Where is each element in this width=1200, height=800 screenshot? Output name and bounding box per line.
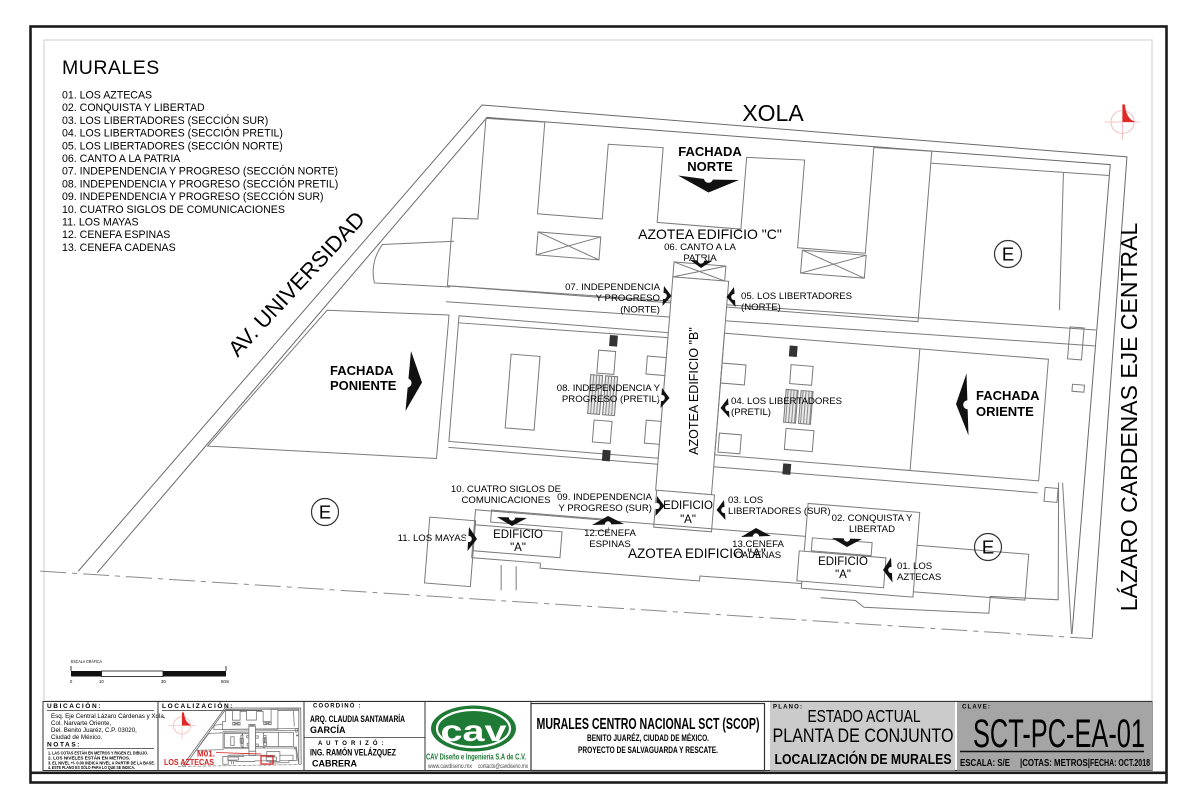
svg-text:E: E: [1002, 244, 1014, 265]
svg-text:05. LOS LIBERTADORES: 05. LOS LIBERTADORES: [741, 291, 852, 302]
svg-text:FACHADA: FACHADA: [330, 363, 394, 378]
svg-text:NORTE: NORTE: [687, 159, 733, 174]
svg-text:AZOTEA EDIFICIO "C": AZOTEA EDIFICIO "C": [638, 226, 782, 242]
svg-text:09. INDEPENDENCIA: 09. INDEPENDENCIA: [557, 492, 652, 503]
svg-text:E: E: [982, 537, 994, 558]
svg-text:03. LOS LIBERTADORES (SECCIÓN: 03. LOS LIBERTADORES (SECCIÓN SUR): [62, 114, 268, 127]
svg-text:www.cavdiseno.mx: www.cavdiseno.mx: [427, 763, 473, 770]
svg-text:Col. Narvarte Oriente,: Col. Narvarte Oriente,: [51, 720, 111, 727]
svg-text:05. LOS LIBERTADORES (SECCIÓN: 05. LOS LIBERTADORES (SECCIÓN NORTE): [62, 139, 283, 152]
svg-text:06. CANTO A LA: 06. CANTO A LA: [664, 242, 736, 253]
svg-text:SCT-PC-EA-01: SCT-PC-EA-01: [973, 712, 1145, 756]
svg-text:50m: 50m: [221, 679, 230, 684]
svg-text:EDIFICIO: EDIFICIO: [818, 556, 868, 568]
svg-text:ESPINAS: ESPINAS: [589, 539, 631, 550]
svg-text:ESCALA GRÁFICA: ESCALA GRÁFICA: [71, 659, 102, 664]
svg-text:Ciudad de México.: Ciudad de México.: [51, 734, 103, 741]
svg-text:01. LOS AZTECAS: 01. LOS AZTECAS: [62, 90, 152, 102]
svg-text:EDIFICIO: EDIFICIO: [493, 529, 543, 541]
svg-text:12. CENEFA ESPINAS: 12. CENEFA ESPINAS: [62, 229, 170, 241]
svg-text:LOCALIZACIÓN:: LOCALIZACIÓN:: [162, 701, 234, 710]
svg-text:"A": "A": [680, 514, 696, 526]
svg-text:EDIFICIO: EDIFICIO: [663, 500, 713, 512]
svg-text:CABRERA: CABRERA: [312, 759, 358, 769]
svg-text:Del. Benito Juaréz, C.P. 03020: Del. Benito Juaréz, C.P. 03020,: [51, 727, 137, 734]
svg-text:PLANO:: PLANO:: [773, 705, 803, 711]
svg-text:PLANTA DE CONJUNTO: PLANTA DE CONJUNTO: [773, 726, 954, 747]
svg-text:"A": "A": [510, 542, 526, 554]
svg-text:CADENAS: CADENAS: [735, 550, 781, 561]
svg-text:E: E: [319, 502, 331, 523]
svg-text:LOCALIZACIÓN DE MURALES: LOCALIZACIÓN DE MURALES: [775, 750, 952, 768]
svg-text:02. CONQUISTA Y LIBERTAD: 02. CONQUISTA Y LIBERTAD: [62, 102, 205, 114]
svg-text:LIBERTADORES (SUR): LIBERTADORES (SUR): [728, 506, 831, 517]
svg-text:AZTECAS: AZTECAS: [897, 572, 941, 583]
svg-text:UBICACIÓN:: UBICACIÓN:: [47, 701, 102, 710]
svg-text:COMUNICACIONES: COMUNICACIONES: [461, 495, 550, 506]
svg-text:GARCÍA: GARCÍA: [310, 725, 346, 735]
svg-text:(NORTE): (NORTE): [741, 302, 781, 313]
svg-text:CLAVE:: CLAVE:: [962, 705, 991, 711]
svg-text:04. LOS LIBERTADORES: 04. LOS LIBERTADORES: [731, 396, 842, 407]
svg-text:03. LOS: 03. LOS: [728, 495, 763, 506]
svg-text:ESCALA: S/E: ESCALA: S/E: [960, 757, 1010, 769]
svg-text:01. LOS: 01. LOS: [897, 561, 932, 572]
svg-text:10. CUATRO SIGLOS DE COMUNICAC: 10. CUATRO SIGLOS DE COMUNICACIONES: [62, 204, 285, 216]
svg-text:"A": "A": [835, 569, 851, 581]
svg-text:FECHA: OCT.2018: FECHA: OCT.2018: [1090, 757, 1150, 769]
svg-text:|COTAS: METROS|: |COTAS: METROS|: [1020, 757, 1090, 769]
svg-text:06. CANTO A LA PATRIA: 06. CANTO A LA PATRIA: [62, 153, 181, 165]
svg-text:11. LOS MAYAS: 11. LOS MAYAS: [62, 217, 139, 229]
svg-text:ORIENTE: ORIENTE: [976, 404, 1034, 419]
svg-text:XOLA: XOLA: [742, 100, 804, 126]
svg-text:contacto@cavdiseno.mx: contacto@cavdiseno.mx: [478, 763, 529, 770]
svg-text:12.CENEFA: 12.CENEFA: [584, 528, 636, 539]
svg-text:Y PROGRESO (SUR): Y PROGRESO (SUR): [558, 503, 652, 514]
svg-text:ARQ. CLAUDIA SANTAMARÍA: ARQ. CLAUDIA SANTAMARÍA: [310, 714, 405, 724]
svg-text:AZOTEA EDIFICIO "B": AZOTEA EDIFICIO "B": [687, 327, 701, 455]
svg-text:30: 30: [161, 679, 166, 684]
svg-text:PROGRESO (PRETIL): PROGRESO (PRETIL): [562, 394, 660, 405]
svg-text:10. CUATRO SIGLOS DE: 10. CUATRO SIGLOS DE: [451, 484, 561, 495]
svg-text:09. INDEPENDENCIA Y PROGRESO (: 09. INDEPENDENCIA Y PROGRESO (SECCIÓN SU…: [62, 190, 324, 203]
svg-text:Esq. Eje Central Lázaro Cárden: Esq. Eje Central Lázaro Cárdenas y Xola,: [51, 713, 166, 720]
svg-text:NOTAS:: NOTAS:: [47, 742, 81, 749]
svg-text:MURALES CENTRO NACIONAL SCT (S: MURALES CENTRO NACIONAL SCT (SCOP): [537, 716, 760, 733]
svg-text:04. LOS LIBERTADORES (SECCIÓN: 04. LOS LIBERTADORES (SECCIÓN PRETIL): [62, 127, 283, 140]
svg-text:PONIENTE: PONIENTE: [330, 378, 397, 393]
svg-text:4. ESTE PLANO ES SÓLO PARA LO: 4. ESTE PLANO ES SÓLO PARA LO QUE SE IND…: [48, 763, 135, 770]
svg-text:07. INDEPENDENCIA: 07. INDEPENDENCIA: [565, 282, 660, 293]
svg-text:COORDINÓ :: COORDINÓ :: [313, 702, 362, 710]
svg-text:FACHADA: FACHADA: [976, 388, 1040, 403]
svg-text:(NORTE): (NORTE): [620, 304, 660, 315]
svg-text:CAV Diseño e Ingeniería S.A de: CAV Diseño e Ingeniería S.A de C.V.: [426, 753, 526, 762]
svg-text:02. CONQUISTA Y: 02. CONQUISTA Y: [832, 513, 913, 524]
svg-text:LIBERTAD: LIBERTAD: [849, 524, 895, 535]
svg-text:LOS AZTECAS: LOS AZTECAS: [164, 758, 214, 767]
svg-text:11. LOS MAYAS: 11. LOS MAYAS: [398, 533, 467, 544]
svg-text:ING. RAMÓN VELÁZQUEZ: ING. RAMÓN VELÁZQUEZ: [310, 747, 396, 758]
svg-text:PROYECTO DE SALVAGUARDA Y RESC: PROYECTO DE SALVAGUARDA Y RESCATE.: [578, 745, 718, 756]
svg-text:13.CENEFA: 13.CENEFA: [732, 539, 784, 550]
svg-text:Y PROGRESO: Y PROGRESO: [596, 293, 660, 304]
svg-text:A U T O R I Z Ó :: A U T O R I Z Ó :: [318, 739, 385, 747]
svg-text:10: 10: [99, 679, 104, 684]
svg-text:08. INDEPENDENCIA Y: 08. INDEPENDENCIA Y: [557, 383, 661, 394]
svg-text:07. INDEPENDENCIA Y PROGRESO (: 07. INDEPENDENCIA Y PROGRESO (SECCIÓN NO…: [62, 165, 338, 178]
svg-text:FACHADA: FACHADA: [678, 144, 742, 159]
svg-text:cav: cav: [441, 715, 507, 748]
svg-text:08. INDEPENDENCIA Y PROGRESO (: 08. INDEPENDENCIA Y PROGRESO (SECCIÓN PR…: [62, 177, 338, 190]
svg-text:13. CENEFA CADENAS: 13. CENEFA CADENAS: [62, 242, 176, 254]
svg-text:BENITO JUARÉZ, CIUDAD DE MÉXIC: BENITO JUARÉZ, CIUDAD DE MÉXICO.: [587, 733, 709, 744]
svg-text:(PRETIL): (PRETIL): [731, 407, 771, 418]
svg-text:LÁZARO CARDENAS EJE CENTRAL: LÁZARO CARDENAS EJE CENTRAL: [1116, 223, 1142, 612]
svg-text:ESTADO ACTUAL: ESTADO ACTUAL: [808, 706, 921, 726]
svg-text:MURALES: MURALES: [62, 57, 160, 79]
